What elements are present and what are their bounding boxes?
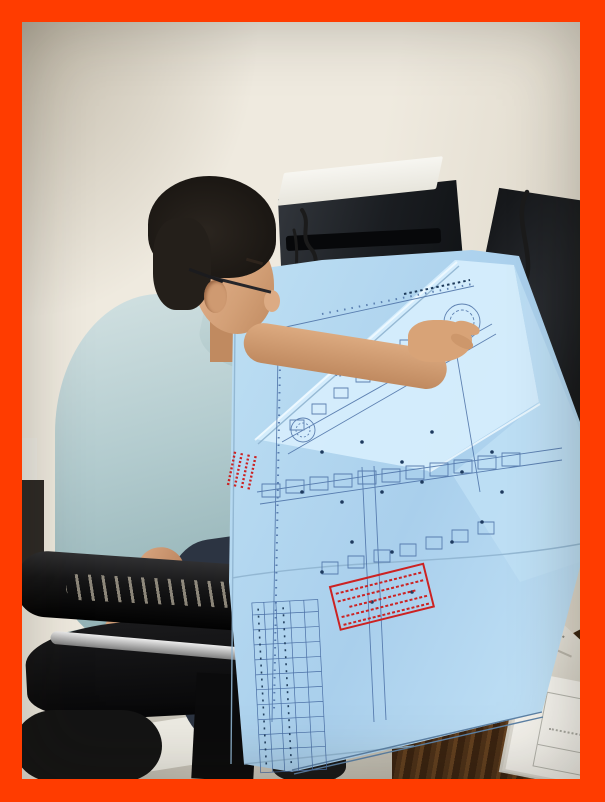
left-edge-paper [22, 438, 37, 486]
man-hair-back [153, 218, 211, 310]
man-nose [264, 290, 280, 312]
paper-form-divider [538, 744, 580, 758]
paper-form-text-dashes [548, 728, 580, 740]
man-ear [204, 280, 227, 313]
photo [22, 22, 580, 779]
tower-drive-bay [286, 228, 442, 251]
chair-base [22, 710, 162, 779]
photo-frame [0, 0, 605, 802]
